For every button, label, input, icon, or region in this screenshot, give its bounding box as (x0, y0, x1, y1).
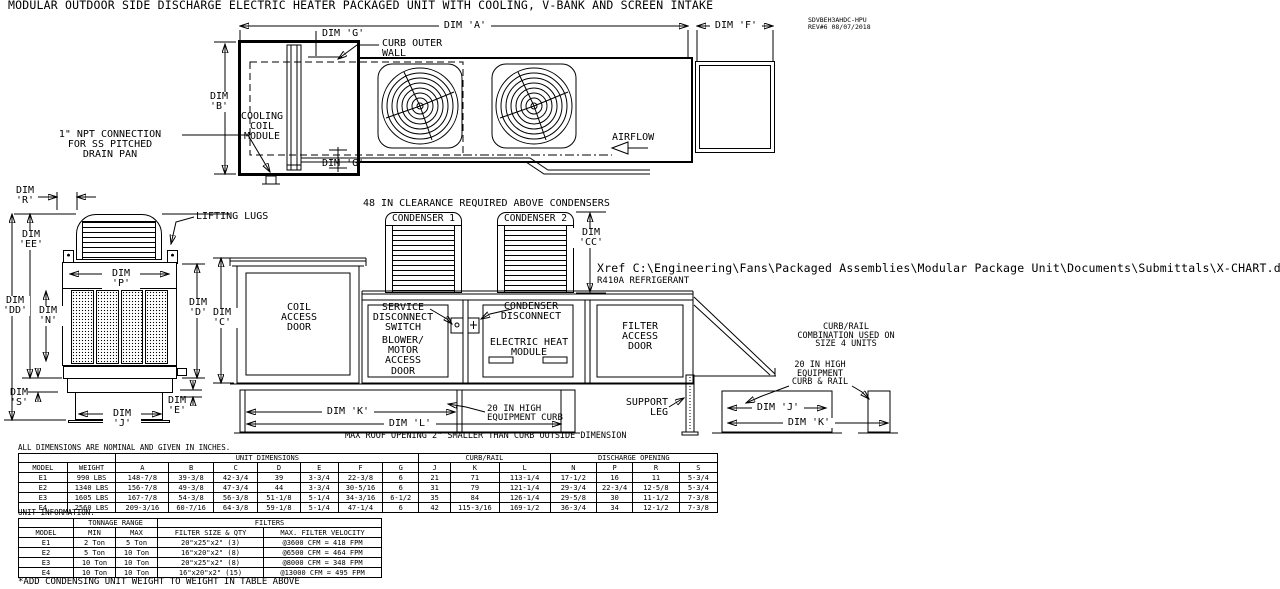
table-cell: 5-1/4 (300, 503, 338, 513)
table-cell: 121-1/4 (499, 483, 550, 493)
cad-drawing-sheet: CONDENSER 1 CONDENSER 2 (0, 0, 1280, 589)
table-cell: 47-1/4 (338, 503, 382, 513)
table-cell: 1340 LBS (67, 483, 116, 493)
table-cell: 10 Ton (74, 568, 116, 578)
table-cell: 7-3/8 (679, 493, 717, 503)
lifting-lugs-label: LIFTING LUGS (196, 212, 268, 222)
revision-note: REV#6 08/07/2018 (808, 24, 871, 31)
table-cell: 16"x20"x2" (15) (158, 568, 264, 578)
table-cell: 30 (597, 493, 633, 503)
table-cell: 34 (597, 503, 633, 513)
refrigerant-note: R410A REFRIGERANT (597, 277, 689, 286)
filter-access-door-label: FILTER ACCESS DOOR (600, 322, 680, 353)
table-cell: 113-1/4 (499, 473, 550, 483)
table-cell: 49-3/8 (169, 483, 213, 493)
table-cell: 3-3/4 (300, 473, 338, 483)
table-row: E12 Ton5 Ton20"x25"x2" (3)@3600 CFM = 41… (19, 538, 382, 548)
table-cell: E2 (19, 548, 74, 558)
xref-annotation: Xref C:\Engineering\Fans\Packaged Assemb… (597, 263, 1280, 275)
table-cell: 156-7/8 (116, 483, 169, 493)
table-row: E25 Ton10 Ton16"x20"x2" (8)@6500 CFM = 4… (19, 548, 382, 558)
table-group-header: FILTERS (158, 519, 382, 528)
table-cell: 169-1/2 (499, 503, 550, 513)
table-group-header: CURB/RAIL (419, 454, 550, 463)
table-cell: 20"x25"x2" (3) (158, 538, 264, 548)
table-column-header: L (499, 463, 550, 473)
dim-l-elevation-label: DIM 'L' (384, 419, 436, 429)
table-group-header: UNIT DIMENSIONS (116, 454, 419, 463)
dimensions-table: UNIT DIMENSIONSCURB/RAILDISCHARGE OPENIN… (18, 453, 718, 513)
table-cell: E3 (19, 493, 68, 503)
table-cell: @6500 CFM = 464 FPM (264, 548, 382, 558)
table-row: E410 Ton10 Ton16"x20"x2" (15)@13000 CFM … (19, 568, 382, 578)
clearance-note: 48 IN CLEARANCE REQUIRED ABOVE CONDENSER… (363, 199, 610, 209)
table-column-header: MAX. FILTER VELOCITY (264, 528, 382, 538)
table-cell: E3 (19, 558, 74, 568)
weight-footnote: *ADD CONDENSING UNIT WEIGHT TO WEIGHT IN… (18, 578, 300, 587)
table-group-header: TONNAGE RANGE (74, 519, 158, 528)
table-cell: 42-3/4 (213, 473, 257, 483)
unit-information-note: UNIT INFORMATION. (18, 509, 95, 517)
table-cell: 5-3/4 (679, 473, 717, 483)
dim-j-endview-label: DIM 'J' (103, 409, 141, 429)
blower-access-door-label: BLOWER/ MOTOR ACCESS DOOR (363, 336, 443, 377)
table-cell: E1 (19, 538, 74, 548)
table-cell: 11 (633, 473, 680, 483)
table-cell: 47-3/4 (213, 483, 257, 493)
table-cell: 39-3/8 (169, 473, 213, 483)
info-table-wrap: TONNAGE RANGEFILTERSMODELMINMAXFILTER SI… (18, 518, 382, 578)
table-cell: @13000 CFM = 495 FPM (264, 568, 382, 578)
table-cell: 29-3/4 (550, 483, 597, 493)
curb-rail-combination-note: CURB/RAIL COMBINATION USED ON SIZE 4 UNI… (788, 323, 904, 349)
table-group-header (19, 454, 116, 463)
table-cell: 10 Ton (116, 548, 158, 558)
airflow-arrow (612, 142, 648, 154)
table-cell: 6 (383, 473, 419, 483)
table-cell: @3600 CFM = 418 FPM (264, 538, 382, 548)
table-column-header: MODEL (19, 463, 68, 473)
table-column-header: S (679, 463, 717, 473)
table-cell: 2 Ton (74, 538, 116, 548)
table-cell: 167-7/8 (116, 493, 169, 503)
table-cell: 51-1/8 (258, 493, 300, 503)
table-cell: 71 (451, 473, 500, 483)
table-cell: 6 (383, 503, 419, 513)
table-cell: 30-5/16 (338, 483, 382, 493)
table-cell: 12-1/2 (633, 503, 680, 513)
curb-rail-note: 20 IN HIGH EQUIPMENT CURB & RAIL (788, 361, 852, 387)
table-cell: 54-3/8 (169, 493, 213, 503)
table-cell: 3-3/4 (300, 483, 338, 493)
table-column-header: K (451, 463, 500, 473)
table-cell: 16 (597, 473, 633, 483)
dim-f-label: DIM 'F' (710, 21, 762, 31)
table-column-header: FILTER SIZE & QTY (158, 528, 264, 538)
table-cell: 5-1/4 (300, 493, 338, 503)
table-column-header: F (338, 463, 382, 473)
table-row: E1990 LBS148-7/839-3/842-3/4393-3/422-3/… (19, 473, 718, 483)
table-column-header: J (419, 463, 451, 473)
dim-j-detail-label: DIM 'J' (752, 403, 804, 413)
table-cell: 34-3/16 (338, 493, 382, 503)
table-cell: 29-5/8 (550, 493, 597, 503)
dim-s-label: DIM 'S' (4, 388, 34, 408)
table-cell: 10 Ton (74, 558, 116, 568)
table-cell: 84 (451, 493, 500, 503)
table-cell: 64-3/8 (213, 503, 257, 513)
table-cell: 36-3/4 (550, 503, 597, 513)
table-group-header: DISCHARGE OPENING (550, 454, 717, 463)
table-cell: 44 (258, 483, 300, 493)
table-cell: 5 Ton (74, 548, 116, 558)
table-column-header: A (116, 463, 169, 473)
table-cell: 79 (451, 483, 500, 493)
condenser-fan-1 (378, 64, 462, 148)
intake-hood (694, 297, 776, 376)
table-cell: 21 (419, 473, 451, 483)
table-cell: @8000 CFM = 348 FPM (264, 558, 382, 568)
dimensions-note: ALL DIMENSIONS ARE NOMINAL AND GIVEN IN … (18, 444, 230, 452)
detail-rail-box (868, 391, 890, 432)
table-cell: 990 LBS (67, 473, 116, 483)
table-cell: 35 (419, 493, 451, 503)
table-cell: 6 (383, 483, 419, 493)
condenser-fan-2 (492, 64, 576, 148)
table-cell: 12-5/8 (633, 483, 680, 493)
cooling-coil-module-label: COOLING COIL MODULE (238, 112, 286, 143)
dim-dd-label: DIM 'DD' (0, 296, 30, 316)
drain-connection (266, 176, 276, 184)
table-cell: 56-3/8 (213, 493, 257, 503)
dim-cc-label: DIM 'CC' (573, 228, 609, 248)
table-column-header: G (383, 463, 419, 473)
table-cell: 126-1/4 (499, 493, 550, 503)
table-column-header: MODEL (19, 528, 74, 538)
coil-access-door-label: COIL ACCESS DOOR (250, 303, 348, 334)
table-cell: 10 Ton (116, 558, 158, 568)
table-cell: E4 (19, 568, 74, 578)
dim-b-label: DIM 'B' (202, 92, 236, 112)
dim-e-label: DIM 'E' (162, 396, 192, 416)
table-row: E21340 LBS156-7/849-3/847-3/4443-3/430-5… (19, 483, 718, 493)
dim-g-bottom-label: DIM 'G' (322, 159, 364, 169)
dim-c-label: DIM 'C' (206, 308, 238, 328)
table-group-header (19, 519, 74, 528)
table-cell: 60-7/16 (169, 503, 213, 513)
table-cell: 209-3/16 (116, 503, 169, 513)
table-cell: 42 (419, 503, 451, 513)
dim-n-label: DIM 'N' (32, 306, 64, 326)
table-cell: 39 (258, 473, 300, 483)
table-row: E42560 LBS209-3/1660-7/1664-3/859-1/85-1… (19, 503, 718, 513)
table-column-header: P (597, 463, 633, 473)
support-leg-label: SUPPORT LEG (624, 398, 668, 418)
table-column-header: R (633, 463, 680, 473)
dim-k-detail-label: DIM 'K' (783, 418, 835, 428)
table-cell: 7-3/8 (679, 503, 717, 513)
table-cell: 1605 LBS (67, 493, 116, 503)
unit-info-table: TONNAGE RANGEFILTERSMODELMINMAXFILTER SI… (18, 518, 382, 578)
dimensions-table-wrap: UNIT DIMENSIONSCURB/RAILDISCHARGE OPENIN… (18, 453, 718, 513)
condenser-disconnect-label: CONDENSER DISCONNECT (495, 302, 567, 322)
dim-p-label: DIM 'P' (102, 269, 140, 289)
sheet-title: MODULAR OUTDOOR SIDE DISCHARGE ELECTRIC … (8, 0, 713, 12)
table-cell: 5 Ton (116, 538, 158, 548)
plan-dimensions (182, 26, 773, 174)
table-row: E31605 LBS167-7/854-3/856-3/851-1/85-1/4… (19, 493, 718, 503)
table-cell: 22-3/8 (338, 473, 382, 483)
table-column-header: B (169, 463, 213, 473)
curb-outer-wall-label: CURB OUTER WALL (382, 39, 442, 59)
table-cell: 16"x20"x2" (8) (158, 548, 264, 558)
table-cell: E1 (19, 473, 68, 483)
dim-k-elevation-label: DIM 'K' (322, 407, 374, 417)
table-row: E310 Ton10 Ton20"x25"x2" (8)@8000 CFM = … (19, 558, 382, 568)
table-cell: 20"x25"x2" (8) (158, 558, 264, 568)
dim-ee-label: DIM 'EE' (15, 230, 47, 250)
airflow-label: AIRFLOW (612, 133, 654, 143)
table-column-header: MIN (74, 528, 116, 538)
table-cell: 22-3/4 (597, 483, 633, 493)
service-disconnect-switch-box (451, 318, 463, 333)
table-cell: 148-7/8 (116, 473, 169, 483)
table-column-header: MAX (116, 528, 158, 538)
npt-drain-note: 1" NPT CONNECTION FOR SS PITCHED DRAIN P… (40, 130, 180, 161)
table-column-header: C (213, 463, 257, 473)
table-cell: E2 (19, 483, 68, 493)
table-cell: 10 Ton (116, 568, 158, 578)
table-column-header: N (550, 463, 597, 473)
table-cell: 6-1/2 (383, 493, 419, 503)
cooling-coil-slab (287, 45, 301, 170)
dim-r-label: DIM 'R' (10, 186, 40, 206)
table-cell: 31 (419, 483, 451, 493)
equipment-curb-note: 20 IN HIGH EQUIPMENT CURB (487, 405, 563, 423)
plan-view-lines (250, 45, 650, 184)
roof-opening-note: MAX ROOF OPENING 2" SMALLER THAN CURB OU… (345, 432, 626, 441)
service-disconnect-label: SERVICE DISCONNECT SWITCH (363, 303, 443, 334)
table-cell: 59-1/8 (258, 503, 300, 513)
dim-a-label: DIM 'A' (439, 21, 491, 31)
dim-g-top-label: DIM 'G' (322, 29, 364, 39)
electric-heat-module-label: ELECTRIC HEAT MODULE (483, 338, 575, 358)
table-cell: 17-1/2 (550, 473, 597, 483)
table-cell: 11-1/2 (633, 493, 680, 503)
table-cell: 115-3/16 (451, 503, 500, 513)
table-column-header: E (300, 463, 338, 473)
table-column-header: D (258, 463, 300, 473)
table-cell: 5-3/4 (679, 483, 717, 493)
table-column-header: WEIGHT (67, 463, 116, 473)
